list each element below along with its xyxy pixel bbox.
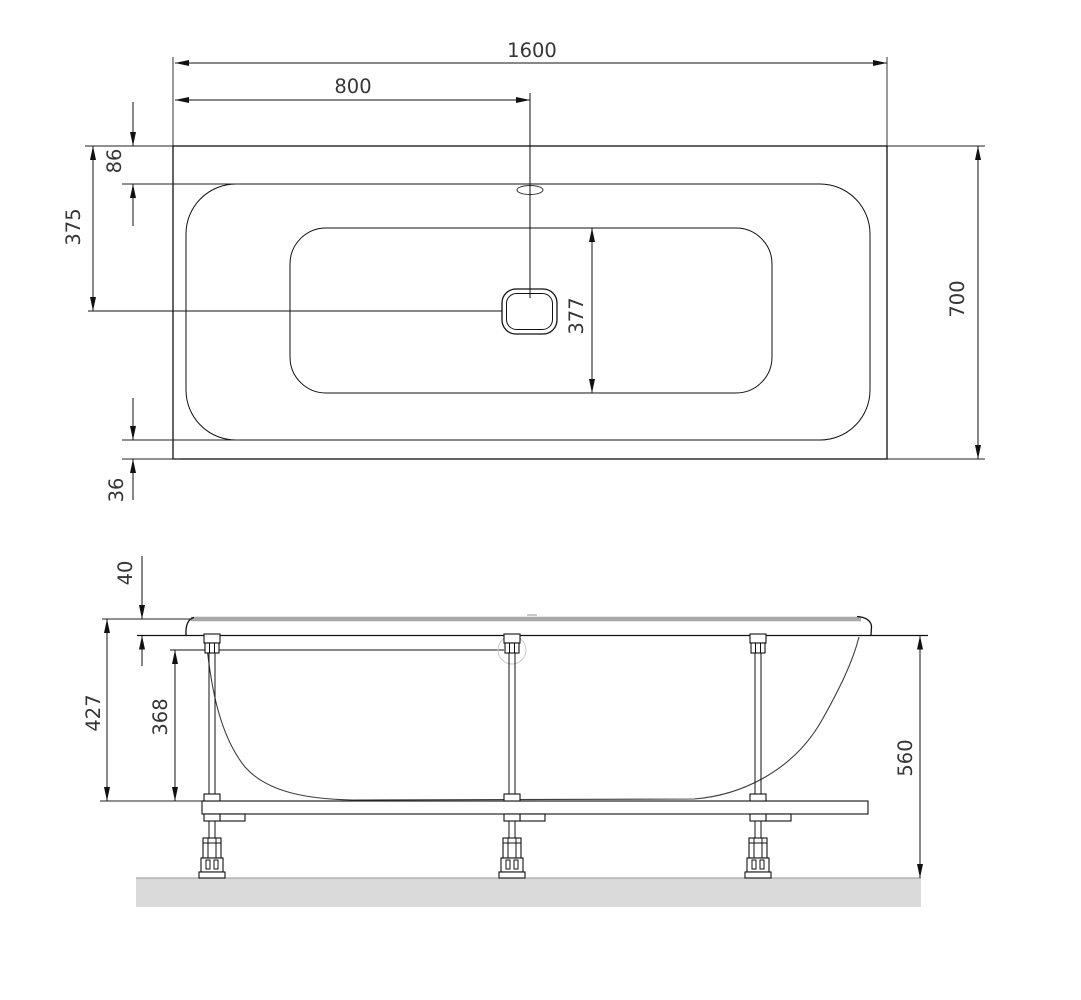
dim-label-36: 36: [105, 478, 128, 503]
frame-leg-center: [499, 634, 545, 878]
frame-bottom-rail: [202, 801, 868, 814]
dim-overall-width: 700: [887, 146, 985, 459]
dim-top-rim-width: 86: [85, 102, 240, 226]
dim-label-377: 377: [565, 297, 588, 334]
dim-underside-to-floor: 560: [894, 636, 920, 879]
dim-label-86: 86: [103, 149, 126, 174]
dim-label-800: 800: [334, 75, 371, 98]
dim-label-700: 700: [946, 280, 969, 317]
floor-slab: [136, 878, 921, 907]
plan-view: 1600 800 86 375 36: [62, 39, 985, 502]
dim-label-375: 375: [62, 208, 85, 245]
dim-drain-from-top: 375: [62, 146, 93, 311]
dim-label-40: 40: [114, 561, 137, 586]
frame-leg-right: [745, 634, 791, 878]
dim-rim-to-frame: 427: [82, 619, 107, 801]
side-view: 40 427 368 560: [82, 556, 928, 907]
dim-basin-inner-width: 377: [565, 228, 592, 393]
drain-inner: [507, 294, 553, 330]
frame-leg-left: [199, 634, 245, 878]
dim-label-368: 368: [149, 698, 172, 735]
technical-drawing-sheet: 1600 800 86 375 36: [0, 0, 1081, 1000]
tub-rim-outline: [186, 184, 870, 440]
dim-drain-from-left: 800: [175, 75, 530, 100]
dim-label-427: 427: [82, 694, 105, 731]
dim-label-560: 560: [894, 739, 917, 776]
dim-label-1600: 1600: [507, 39, 557, 62]
dim-leg-clear-height: 368: [149, 650, 175, 801]
bathtub-dimension-drawing: 1600 800 86 375 36: [0, 0, 1081, 1000]
